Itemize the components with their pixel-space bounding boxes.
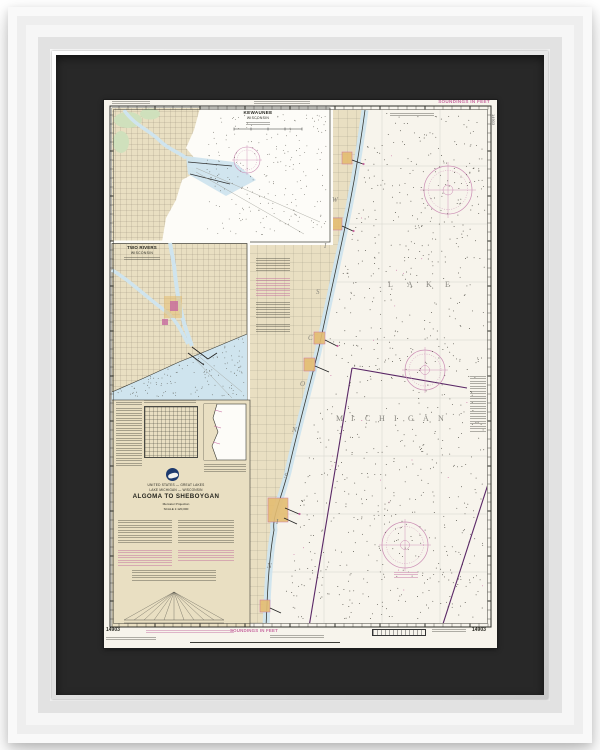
spread-letter: C xyxy=(365,414,370,423)
chart-number-bottom-left: 14903 xyxy=(106,628,120,633)
notes-paragraph xyxy=(118,520,172,544)
chart-note xyxy=(256,258,290,272)
title-region-line: LAKE MICHIGAN — WISCONSIN xyxy=(118,489,234,492)
notes-paragraph xyxy=(178,520,234,544)
spread-letter: E xyxy=(445,280,450,289)
spread-letter: C xyxy=(308,334,313,342)
spread-letter: I xyxy=(394,414,397,423)
nautical-chart: SOUNDINGS IN FEET 14903 KEWAUNEE WISCONS… xyxy=(104,100,497,648)
notes-paragraph xyxy=(132,570,216,582)
spread-letter: S xyxy=(316,288,320,296)
inset-two-rivers-subtitle: WISCONSIN xyxy=(116,252,168,256)
compass-rose-south xyxy=(379,519,431,571)
compass-note xyxy=(394,572,418,578)
spread-letter: I xyxy=(276,518,278,526)
chart-number-bottom-right: 14903 xyxy=(472,628,486,633)
product-photo: SOUNDINGS IN FEET 14903 KEWAUNEE WISCONS… xyxy=(0,0,600,750)
spread-letter: N xyxy=(267,562,272,570)
black-matte: SOUNDINGS IN FEET 14903 KEWAUNEE WISCONS… xyxy=(56,55,544,695)
adjoining-chart-limit-lines xyxy=(309,368,490,627)
spread-letter: G xyxy=(408,414,414,423)
index-strip-map xyxy=(204,404,246,460)
spread-letter: N xyxy=(438,414,444,423)
inset-kewaunee xyxy=(111,107,332,244)
spread-letter: K xyxy=(426,280,432,289)
publication-note-magenta xyxy=(146,630,234,633)
picture-frame: SOUNDINGS IN FEET 14903 KEWAUNEE WISCONS… xyxy=(8,7,592,743)
projection-line: Mercator Projection xyxy=(118,503,234,506)
chart-number-right-edge: 14903 xyxy=(491,114,495,125)
spread-letter: I xyxy=(324,242,326,250)
compass-rose-middle xyxy=(402,347,448,393)
notes-paragraph-magenta xyxy=(178,550,234,562)
lake-note xyxy=(470,376,486,432)
spread-letter: L xyxy=(388,280,393,289)
chart-note-magenta xyxy=(256,278,290,296)
spread-letter: A xyxy=(407,280,413,289)
edition-date-note xyxy=(106,637,156,642)
source-diagram-caption xyxy=(144,400,196,404)
compass-rose-north xyxy=(420,162,476,218)
margin-rule xyxy=(190,642,340,643)
inset-kewaunee-scale-note xyxy=(246,122,270,125)
title-country-line: UNITED STATES — GREAT LAKES xyxy=(118,484,234,487)
spread-letter: M xyxy=(336,414,343,423)
tide-table xyxy=(116,408,142,466)
chart-note xyxy=(256,302,290,318)
inset-two-rivers-scale-note xyxy=(124,257,160,260)
top-left-margin-note xyxy=(112,101,150,104)
notes-paragraph-magenta xyxy=(118,550,172,566)
spread-letter: H xyxy=(379,414,385,423)
spread-letter: A xyxy=(423,414,429,423)
edition-note xyxy=(432,629,466,633)
bar-scale xyxy=(372,629,426,636)
spread-letter: O xyxy=(300,380,305,388)
spread-letter: I xyxy=(351,414,354,423)
soundings-note-top: SOUNDINGS IN FEET xyxy=(438,100,490,105)
datum-note xyxy=(270,635,324,639)
spread-letter: N xyxy=(292,426,297,434)
noaa-logo-icon xyxy=(166,468,179,481)
source-diagram xyxy=(144,406,198,458)
table-header xyxy=(116,402,142,406)
soundings-note-bottom: SOUNDINGS IN FEET xyxy=(222,629,286,634)
frame-inner-lip: SOUNDINGS IN FEET 14903 KEWAUNEE WISCONS… xyxy=(52,51,548,699)
inset-kewaunee-subtitle: WISCONSIN xyxy=(230,117,286,121)
top-center-margin-note xyxy=(254,101,310,104)
adjoining-chart-note xyxy=(390,113,434,116)
spread-letter: W xyxy=(332,196,338,204)
spread-letter: S xyxy=(284,472,288,480)
strip-map-caption xyxy=(204,464,246,472)
chart-note xyxy=(256,324,290,334)
scale-line: SCALE 1:120,000 xyxy=(118,508,234,511)
inset-two-rivers xyxy=(111,242,249,402)
chart-title: ALGOMA TO SHEBOYGAN xyxy=(114,494,238,501)
